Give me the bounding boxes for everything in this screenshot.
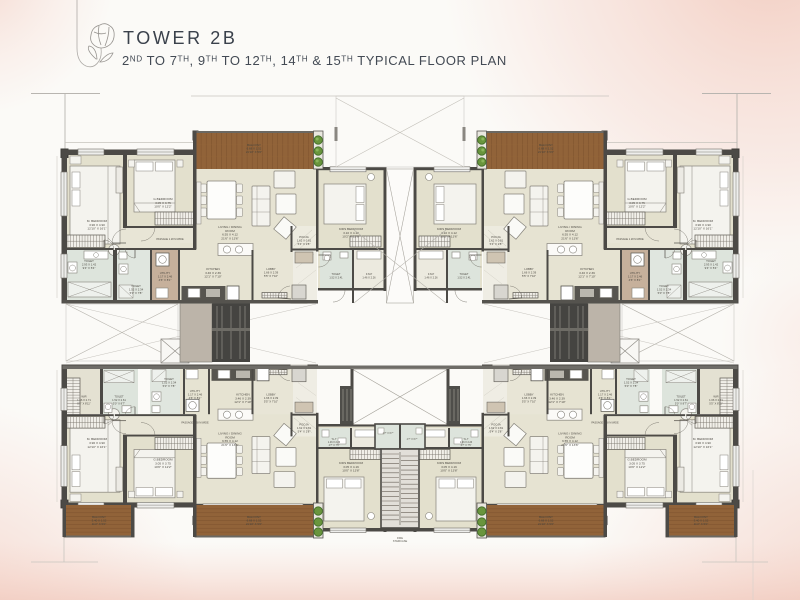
svg-text:TOWER 2B: TOWER 2B: [123, 28, 237, 48]
svg-text:BALCONY6.68 X 1.5221'10" X 5'0: BALCONY6.68 X 1.5221'10" X 5'0": [246, 515, 262, 526]
svg-text:KITCHEN3.46 X 2.3912'1" X 7'10: KITCHEN3.46 X 2.3912'1" X 7'10": [548, 393, 565, 405]
svg-text:BALCONY3.40 X 1.5211'2" X 5'0": BALCONY3.40 X 1.5211'2" X 5'0": [694, 515, 709, 526]
svg-text:M. BEDROOM3.96 X 4.9012'10" X: M. BEDROOM3.96 X 4.9012'10" X 16'1": [87, 437, 108, 449]
svg-text:G.BEDROOM3.05 X 3.7510'0" X 12: G.BEDROOM3.05 X 3.7510'0" X 12'2": [627, 197, 647, 209]
svg-text:BALCONY6.68 X 1.5221'10" X 5'0: BALCONY6.68 X 1.5221'10" X 5'0": [538, 143, 554, 154]
svg-text:M. BEDROOM3.96 X 4.9012'10" X: M. BEDROOM3.96 X 4.9012'10" X 16'1": [87, 219, 108, 231]
svg-text:BALCONY6.68 X 1.5221'10" X 5'0: BALCONY6.68 X 1.5221'10" X 5'0": [538, 515, 554, 526]
svg-text:M. BEDROOM3.96 X 4.9012'10" X: M. BEDROOM3.96 X 4.9012'10" X 16'1": [693, 219, 714, 231]
svg-text:4'7" X 6'7": 4'7" X 6'7": [407, 438, 418, 441]
svg-text:G.BEDROOM3.05 X 3.7510'0" X 12: G.BEDROOM3.05 X 3.7510'0" X 12'2": [627, 458, 647, 470]
svg-text:PASSAGE 1.28 M WIDE: PASSAGE 1.28 M WIDE: [156, 238, 184, 241]
svg-text:G.BEDROOM3.05 X 3.7510'0" X 12: G.BEDROOM3.05 X 3.7510'0" X 12'2": [153, 197, 173, 209]
svg-text:G.BEDROOM3.05 X 3.7510'0" X 12: G.BEDROOM3.05 X 3.7510'0" X 12'2": [153, 458, 173, 470]
svg-text:PASSAGE 1.28 M WIDE: PASSAGE 1.28 M WIDE: [616, 238, 644, 241]
svg-text:4'7" X 6'7": 4'7" X 6'7": [383, 432, 394, 435]
svg-text:KITCHEN3.46 X 2.3912'1" X 7'10: KITCHEN3.46 X 2.3912'1" X 7'10": [234, 393, 251, 405]
svg-text:KITCHEN3.46 X 2.3912'1" X 7'10: KITCHEN3.46 X 2.3912'1" X 7'10": [204, 267, 221, 279]
svg-text:BALCONY6.68 X 1.5221'10" X 5'0: BALCONY6.68 X 1.5221'10" X 5'0": [246, 143, 262, 154]
svg-text:BALCONY3.40 X 1.5211'2" X 5'0": BALCONY3.40 X 1.5211'2" X 5'0": [92, 515, 107, 526]
svg-text:KITCHEN3.46 X 2.3912'1" X 7'10: KITCHEN3.46 X 2.3912'1" X 7'10": [578, 267, 595, 279]
svg-text:M. BEDROOM3.96 X 4.9012'10" X: M. BEDROOM3.96 X 4.9012'10" X 16'1": [693, 437, 714, 449]
